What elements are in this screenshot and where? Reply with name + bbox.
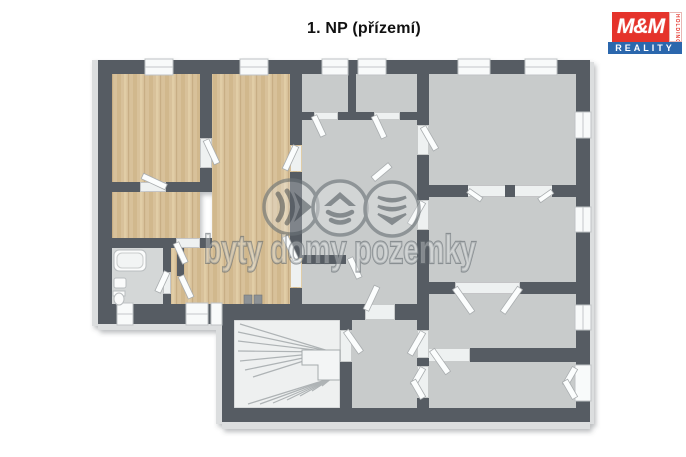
window <box>575 207 591 232</box>
room-bedroom-1 <box>112 74 200 182</box>
window <box>575 112 591 138</box>
watermark-circle-house <box>313 181 367 235</box>
wall-stair-left <box>222 304 234 408</box>
window <box>358 59 386 75</box>
room-small-wood <box>112 192 200 238</box>
room-living <box>429 74 576 185</box>
window <box>322 59 348 75</box>
window <box>145 59 173 75</box>
window <box>186 303 208 325</box>
room-hall-lower <box>340 320 429 408</box>
wall-exterior-left <box>98 74 112 324</box>
window <box>240 59 268 75</box>
toilet <box>113 291 125 305</box>
watermark-text: byty domy pozemky <box>204 228 477 272</box>
floor-plan-page: 1. NP (přízemí) M&M HOLDING REALITY <box>0 0 686 457</box>
room-right-4 <box>429 362 576 408</box>
sink <box>114 278 126 288</box>
wall-exterior-bottom <box>222 408 590 422</box>
window <box>525 59 557 75</box>
window <box>117 303 133 325</box>
window <box>211 303 222 325</box>
window <box>575 305 591 330</box>
floor-plan: byty domy pozemky <box>0 0 686 457</box>
window <box>458 59 490 75</box>
